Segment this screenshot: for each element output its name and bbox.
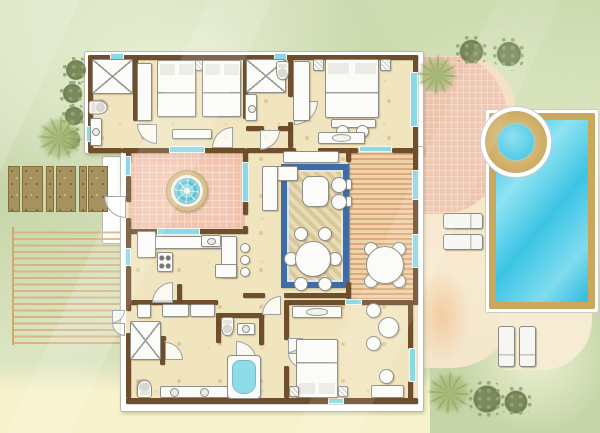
wall-segment xyxy=(346,148,351,162)
wash-basin xyxy=(170,388,179,397)
garden-planter xyxy=(56,166,76,212)
armchair xyxy=(331,194,347,210)
window-glass xyxy=(157,228,200,235)
armchair xyxy=(331,177,347,193)
double-bed xyxy=(296,339,338,398)
villa-floor-plan xyxy=(0,0,600,433)
console-table xyxy=(283,151,339,163)
wall-segment xyxy=(413,199,418,235)
nightstand xyxy=(380,59,391,71)
dining-chair xyxy=(318,227,332,241)
nightstand xyxy=(338,386,348,397)
dresser xyxy=(292,306,342,318)
side-table xyxy=(378,317,399,338)
glass-door xyxy=(412,170,419,200)
wall-segment xyxy=(126,176,131,202)
nightstand xyxy=(313,59,324,71)
twin-bed xyxy=(202,60,241,117)
wash-basin xyxy=(200,388,209,397)
twin-bed xyxy=(157,60,196,117)
wardrobe xyxy=(293,61,310,121)
sofa xyxy=(262,166,278,211)
bar-stool xyxy=(240,267,250,277)
sun-lounger xyxy=(443,213,483,229)
fountain-water xyxy=(174,178,200,204)
wall-segment xyxy=(413,267,418,305)
laundry-unit xyxy=(137,304,151,318)
toilet xyxy=(137,380,152,398)
sun-lounger xyxy=(443,234,483,250)
glass-door xyxy=(409,348,416,382)
pergola-deck xyxy=(12,227,124,345)
dining-chair xyxy=(294,227,308,241)
toilet xyxy=(276,61,289,80)
wall-segment xyxy=(177,284,182,302)
window-glass xyxy=(169,146,205,153)
wall-segment xyxy=(204,148,246,153)
wall-segment xyxy=(284,300,289,340)
window-glass xyxy=(345,299,362,305)
dining-chair xyxy=(318,277,332,291)
wardrobe xyxy=(137,63,152,121)
breakfast-bar xyxy=(215,264,237,278)
garden-planter xyxy=(8,166,20,212)
kitchen-sink xyxy=(201,235,221,247)
window-glass xyxy=(328,398,344,404)
bathtub xyxy=(227,355,261,399)
window-glass xyxy=(242,162,249,202)
floor-plan-canvas xyxy=(0,0,600,433)
dining-table xyxy=(295,241,331,277)
garden-planter xyxy=(79,166,87,212)
stove xyxy=(157,252,173,272)
kitchen-cabinet xyxy=(137,231,156,258)
side-chair xyxy=(366,336,381,351)
tree xyxy=(500,386,532,418)
dresser xyxy=(318,132,365,144)
wall-segment xyxy=(243,293,265,298)
tree xyxy=(455,35,488,68)
wash-basin xyxy=(242,325,250,333)
window-glass xyxy=(359,146,392,152)
shower xyxy=(92,59,133,94)
wall-segment xyxy=(126,229,131,249)
hall-closet xyxy=(190,304,215,317)
wall-segment xyxy=(413,150,418,171)
wash-basin xyxy=(248,105,256,113)
window-glass xyxy=(125,248,131,266)
glass-door xyxy=(412,234,419,268)
wall-segment xyxy=(243,201,248,215)
jacuzzi-water xyxy=(497,123,535,161)
sun-lounger xyxy=(498,326,515,367)
wall-segment xyxy=(286,300,346,305)
tree xyxy=(492,37,526,71)
wash-basin xyxy=(92,128,100,136)
palm-tree xyxy=(28,106,92,170)
bench xyxy=(172,129,212,139)
coffee-table xyxy=(302,176,329,207)
sun-lounger xyxy=(519,326,536,367)
deck-table xyxy=(366,246,404,284)
wall-segment xyxy=(199,229,245,234)
window-glass xyxy=(125,156,131,176)
wall-segment xyxy=(346,282,351,299)
hall-closet xyxy=(162,304,189,317)
wall-segment xyxy=(259,313,264,345)
armchair-back xyxy=(346,179,352,190)
armchair-back xyxy=(346,196,352,207)
garden-planter xyxy=(22,166,43,212)
wall-segment xyxy=(408,300,413,349)
wall-segment xyxy=(88,148,122,153)
desk xyxy=(371,385,404,398)
bar-stool xyxy=(240,243,250,253)
side-chair xyxy=(366,303,381,318)
bar-stool xyxy=(240,255,250,265)
desk-chair xyxy=(379,369,394,384)
wall-segment xyxy=(284,293,348,298)
toilet xyxy=(89,101,108,115)
shower xyxy=(130,321,161,360)
double-bed xyxy=(325,59,379,118)
toilet xyxy=(221,317,234,336)
nightstand xyxy=(289,386,299,397)
wall-segment xyxy=(126,398,418,404)
dining-chair xyxy=(294,277,308,291)
garden-planter xyxy=(46,166,54,212)
